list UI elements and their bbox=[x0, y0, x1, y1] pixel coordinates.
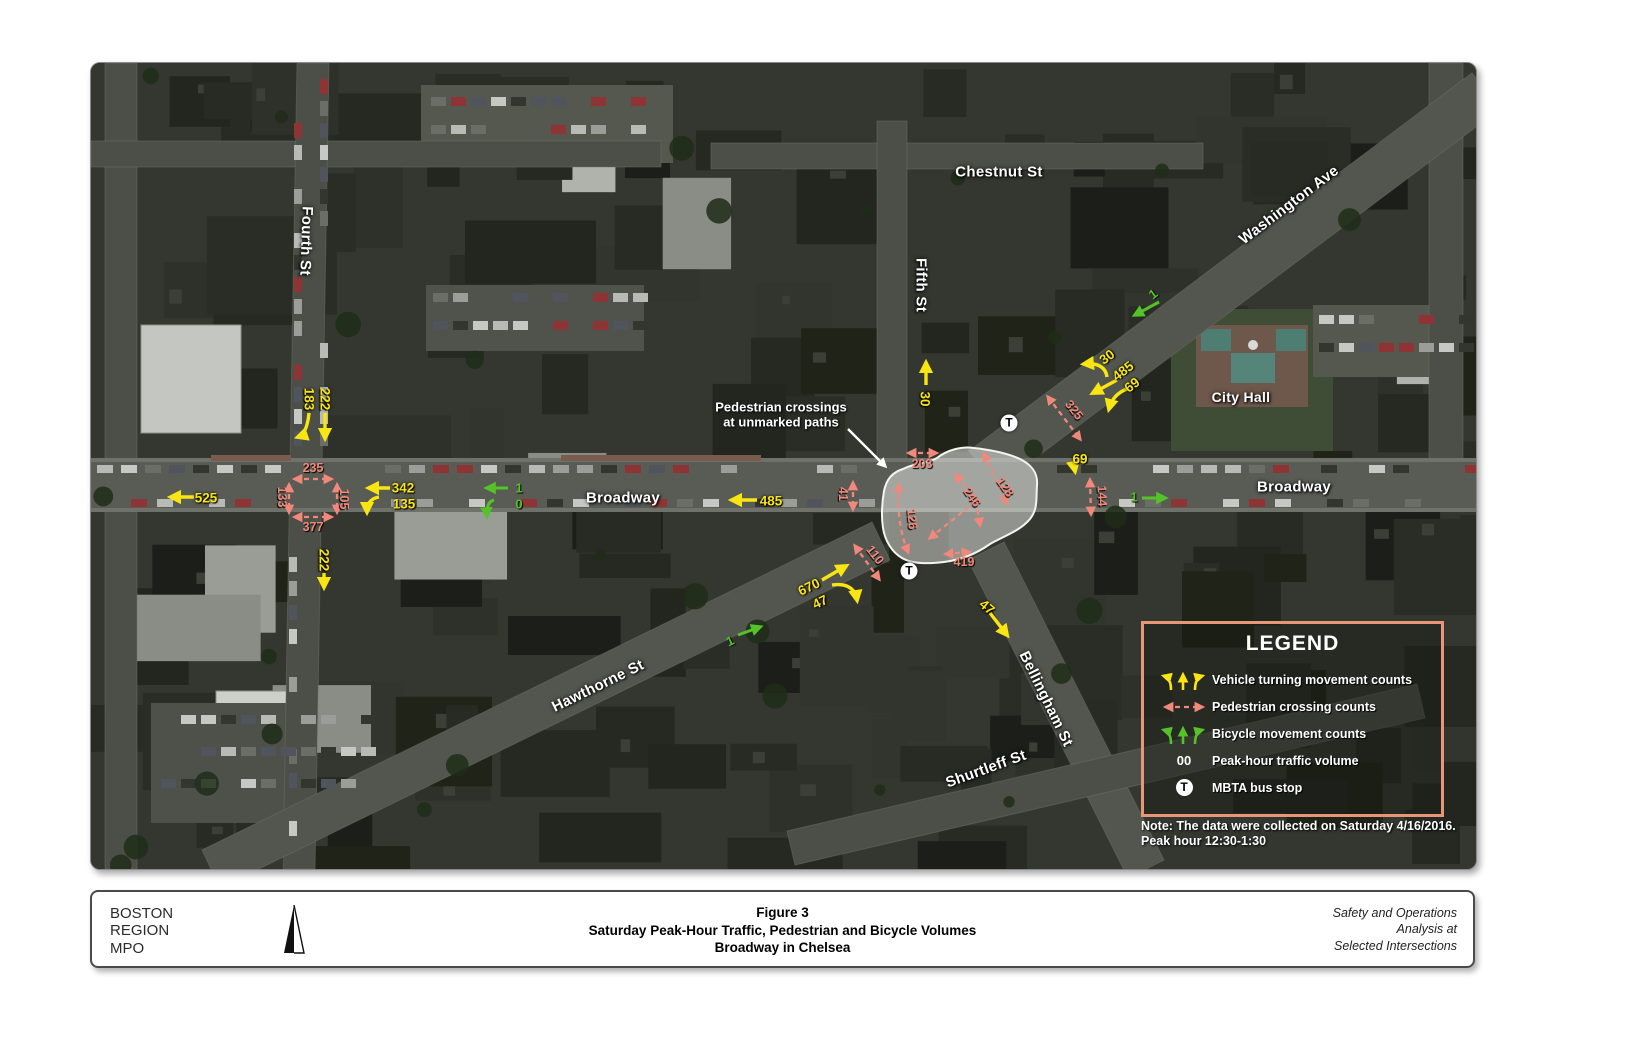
data-note: Note: The data were collected on Saturda… bbox=[1141, 819, 1456, 849]
note-line2: Peak hour 12:30-1:30 bbox=[1141, 834, 1456, 849]
figure-title: Saturday Peak-Hour Traffic, Pedestrian a… bbox=[92, 922, 1473, 940]
series-line1: Safety and Operations bbox=[1333, 905, 1457, 921]
legend-row-vehicle: Vehicle turning movement counts bbox=[1156, 666, 1429, 693]
legend-volume-label: Peak-hour traffic volume bbox=[1212, 754, 1359, 768]
series-line2: Analysis at bbox=[1333, 921, 1457, 937]
figure-page: Fourth St Chestnut St Fifth St Washingto… bbox=[0, 0, 1632, 1056]
vehicle-arrows-icon bbox=[1156, 668, 1212, 692]
series-line3: Selected Intersections bbox=[1333, 938, 1457, 954]
figure-number: Figure 3 bbox=[92, 904, 1473, 922]
legend-row-pedestrian: Pedestrian crossing counts bbox=[1156, 693, 1429, 720]
bicycle-arrows-icon bbox=[1156, 722, 1212, 746]
legend-pedestrian-label: Pedestrian crossing counts bbox=[1212, 700, 1376, 714]
aerial-map: Fourth St Chestnut St Fifth St Washingto… bbox=[90, 62, 1477, 870]
note-line1: Note: The data were collected on Saturda… bbox=[1141, 819, 1456, 834]
mbta-bus-stop-icon: T bbox=[901, 563, 918, 580]
mbta-bus-stop-icon: T bbox=[1001, 415, 1018, 432]
mbta-icon: T bbox=[1176, 779, 1193, 796]
figure-subtitle: Broadway in Chelsea bbox=[92, 939, 1473, 957]
volume-symbol: 00 bbox=[1156, 753, 1212, 768]
report-series-block: Safety and Operations Analysis at Select… bbox=[1333, 905, 1457, 954]
figure-footer: BOSTON REGION MPO Figure 3 Saturday Peak… bbox=[90, 890, 1475, 968]
legend-mbta-label: MBTA bus stop bbox=[1212, 781, 1302, 795]
legend-row-bicycle: Bicycle movement counts bbox=[1156, 720, 1429, 747]
figure-title-block: Figure 3 Saturday Peak-Hour Traffic, Ped… bbox=[92, 904, 1473, 957]
legend-vehicle-label: Vehicle turning movement counts bbox=[1212, 673, 1412, 687]
legend-title: LEGEND bbox=[1156, 632, 1429, 656]
legend-row-mbta: T MBTA bus stop bbox=[1156, 774, 1429, 801]
legend-box: LEGEND Vehicle turning movement counts bbox=[1141, 621, 1444, 817]
legend-row-volume: 00 Peak-hour traffic volume bbox=[1156, 747, 1429, 774]
legend-bicycle-label: Bicycle movement counts bbox=[1212, 727, 1366, 741]
pedestrian-arrow-icon bbox=[1156, 701, 1212, 713]
